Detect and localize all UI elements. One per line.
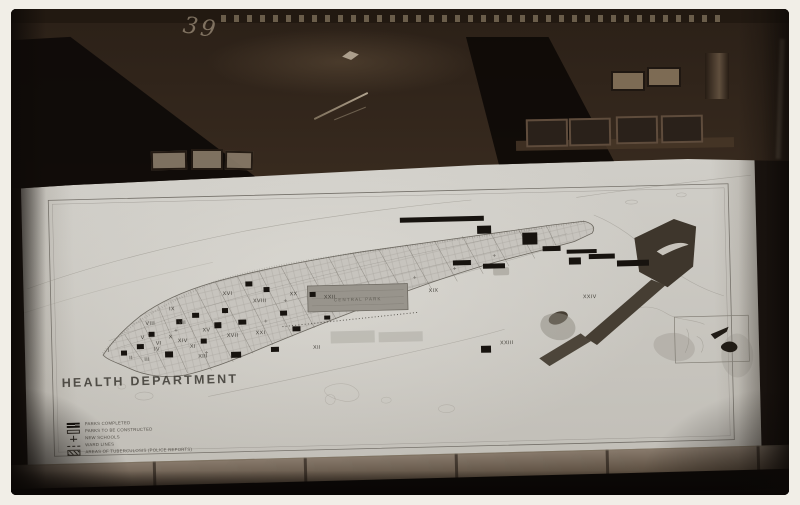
cabinet-plate: [611, 71, 645, 91]
park-completed: [192, 313, 199, 318]
park-completed: [137, 344, 144, 349]
handwritten-mark: 39: [181, 12, 220, 43]
ward-label-XIII: XIII: [198, 353, 208, 359]
map-sheet: CENTRAL PARK: [20, 149, 761, 467]
ward-label-VIII: VIII: [145, 321, 155, 327]
park-completed: [567, 249, 597, 254]
park-completed: [483, 263, 505, 269]
glass-plate: CENTRAL PARK: [11, 9, 789, 495]
park-completed: [522, 232, 537, 244]
legend-label: WARD LINES: [85, 443, 114, 448]
ward-label-II: II: [129, 355, 133, 361]
legend-symbol-cross: [67, 436, 80, 442]
park-completed: [231, 352, 241, 358]
park-completed: [310, 292, 316, 297]
ward-label-XIX: XIX: [429, 288, 439, 294]
legend-symbol-dash-line: [67, 445, 80, 446]
ward-label-XIV: XIV: [178, 338, 188, 344]
park-completed: [201, 339, 207, 344]
park-completed: [400, 216, 484, 223]
ward-label-XV: XV: [202, 327, 210, 333]
ward-label-IV: IV: [154, 347, 160, 353]
stacked-frame: [225, 151, 253, 170]
gray-wash-areas: [493, 261, 754, 383]
park-completed: [245, 281, 252, 286]
park-completed: [543, 246, 561, 251]
cabinet-plate: [647, 67, 681, 87]
map-legend: PARKS COMPLETEDPARKS TO BE CONSTRUCTEDNE…: [67, 418, 234, 457]
archival-photo: CENTRAL PARK: [0, 0, 800, 505]
ward-label-X: X: [169, 334, 173, 340]
legend-label: AREAS OF TUBERCULOSIS (POLICE REPORTS): [85, 448, 192, 455]
cabinet-panel: [661, 115, 703, 144]
park-completed: [271, 347, 279, 352]
park-completed: [263, 287, 269, 292]
legend-symbol-solid-bar: [67, 422, 80, 427]
park-completed: [214, 322, 221, 328]
ward-label-XVII: XVII: [227, 333, 239, 339]
cabinet-side: [705, 53, 729, 99]
stacked-frame: [151, 151, 187, 171]
cabinet-panel: [569, 118, 611, 147]
ward-label-XVIII: XVIII: [253, 298, 267, 304]
ward-label-XX: XX: [290, 291, 298, 297]
park-completed: [280, 311, 287, 316]
ward-label-XXIV: XXIV: [583, 294, 597, 300]
legend-label: PARKS TO BE CONSTRUCTED: [85, 428, 153, 434]
legend-label: PARKS COMPLETED: [85, 421, 131, 426]
legend-label: NEW SCHOOLS: [85, 436, 120, 441]
park-completed: [292, 326, 300, 331]
park-completed: [324, 315, 330, 319]
legend-symbol-open-bar: [67, 430, 80, 434]
ward-label-XII: XII: [313, 345, 321, 351]
park-completed: [238, 320, 246, 325]
ward-label-III: III: [144, 357, 150, 363]
cabinet-panel: [616, 116, 658, 145]
ward-label-V: V: [141, 335, 145, 341]
stacked-frame: [191, 149, 223, 170]
ward-label-XVI: XVI: [223, 291, 233, 297]
park-completed: [222, 308, 228, 313]
cabinet-panel: [526, 119, 568, 148]
park-completed: [589, 254, 615, 260]
park-completed: [453, 260, 471, 265]
ward-label-XI: XI: [190, 344, 196, 350]
ward-label-VII: VII: [178, 320, 186, 326]
park-completed: [481, 346, 491, 353]
ward-label-XXI: XXI: [256, 330, 266, 336]
ward-label-XXII: XXII: [324, 294, 336, 300]
park-completed: [121, 350, 127, 355]
plate-clamp-marks: [221, 15, 726, 22]
manhattan-map: CENTRAL PARK: [20, 149, 761, 467]
park-completed: [165, 351, 173, 357]
park-completed: [569, 257, 581, 264]
ward-label-IX: IX: [169, 306, 175, 312]
park-completed: [477, 226, 491, 234]
park-completed: [149, 332, 155, 337]
ward-label-I: I: [108, 348, 110, 354]
legend-symbol-hatched-bar: [67, 450, 80, 456]
ward-label-VI: VI: [156, 341, 162, 347]
park-completed: [617, 260, 649, 267]
ward-label-XXIII: XXIII: [500, 340, 514, 346]
